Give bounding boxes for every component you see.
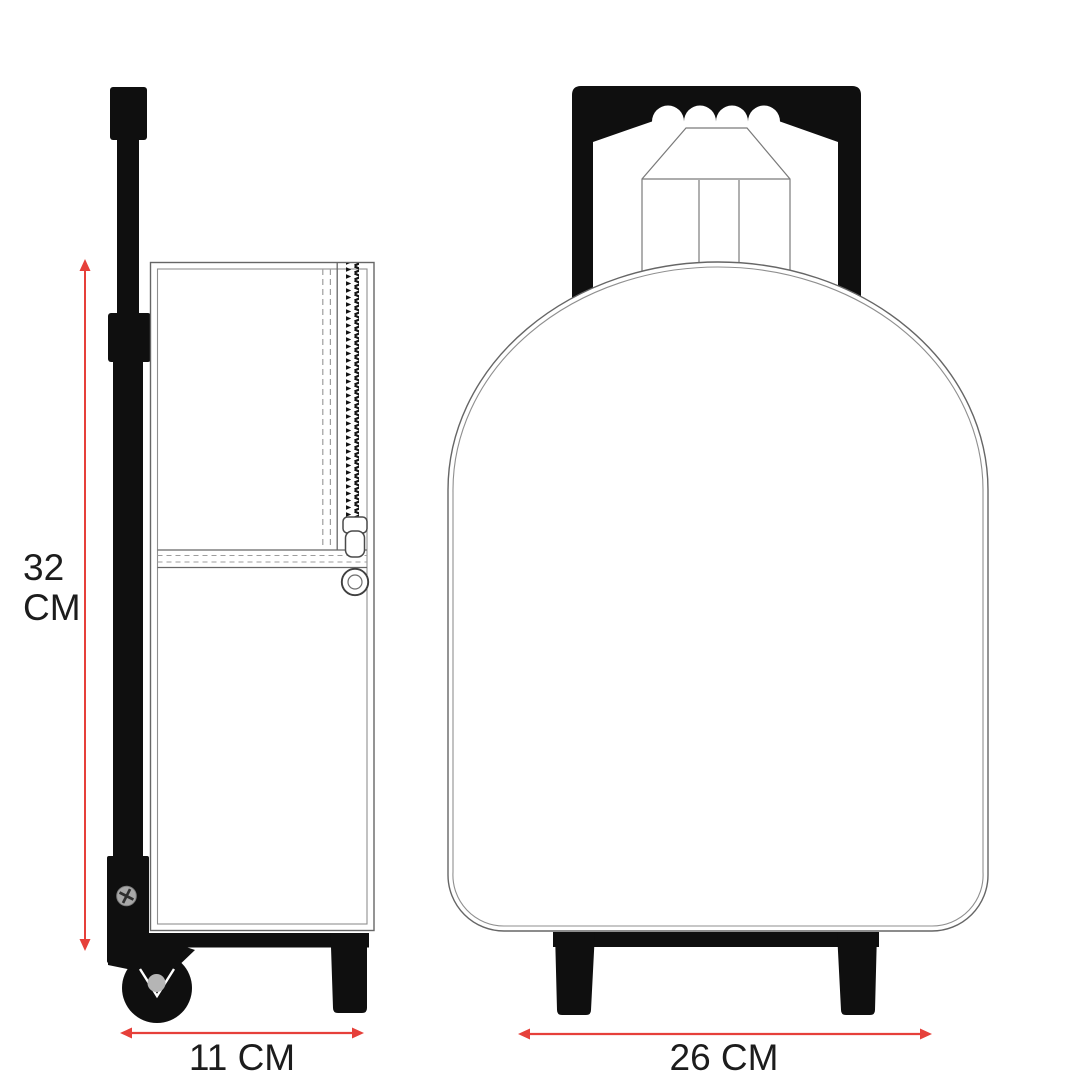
side-panel [151, 263, 375, 931]
side-panel-outline [151, 263, 375, 931]
wheel-axle [148, 974, 166, 992]
height-value: 32 [23, 547, 64, 588]
arrowhead-right-icon [920, 1029, 932, 1040]
zipper-pull-ring-hole [348, 575, 362, 589]
pole-upper-shaft [117, 136, 139, 318]
height-unit: CM [23, 587, 81, 628]
width-dimension-label: 26 CM [624, 1038, 824, 1078]
front-foot-left [555, 932, 595, 1015]
side-rear-foot [330, 933, 367, 1013]
arrowhead-left-icon [120, 1028, 132, 1039]
front-base [553, 932, 879, 1015]
arrowhead-left-icon [518, 1029, 530, 1040]
zipper-pull-tab [346, 531, 365, 557]
side-view [80, 87, 375, 1039]
diagram-drawing [0, 0, 1080, 1080]
arrowhead-down-icon [80, 939, 91, 951]
wheel-assembly [108, 935, 195, 1023]
zipper-teeth [346, 263, 359, 520]
handle-mount-flap [642, 128, 790, 274]
arrowhead-up-icon [80, 259, 91, 271]
pole-connector [108, 313, 151, 362]
pole-lower-shaft [113, 357, 143, 859]
backpack-body [448, 262, 988, 931]
trolley-pole [107, 87, 151, 963]
depth-dimension-label: 11 CM [142, 1038, 342, 1078]
height-dimension-arrow [80, 259, 91, 951]
front-base-bar [553, 932, 879, 947]
arrowhead-right-icon [352, 1028, 364, 1039]
backpack-body-outline [448, 262, 988, 931]
pole-cap [110, 87, 147, 140]
dimension-diagram: 32CM 11 CM 26 CM [0, 0, 1080, 1080]
front-view [448, 86, 988, 1040]
height-dimension-label: 32CM [23, 548, 81, 628]
front-foot-right [837, 932, 877, 1015]
